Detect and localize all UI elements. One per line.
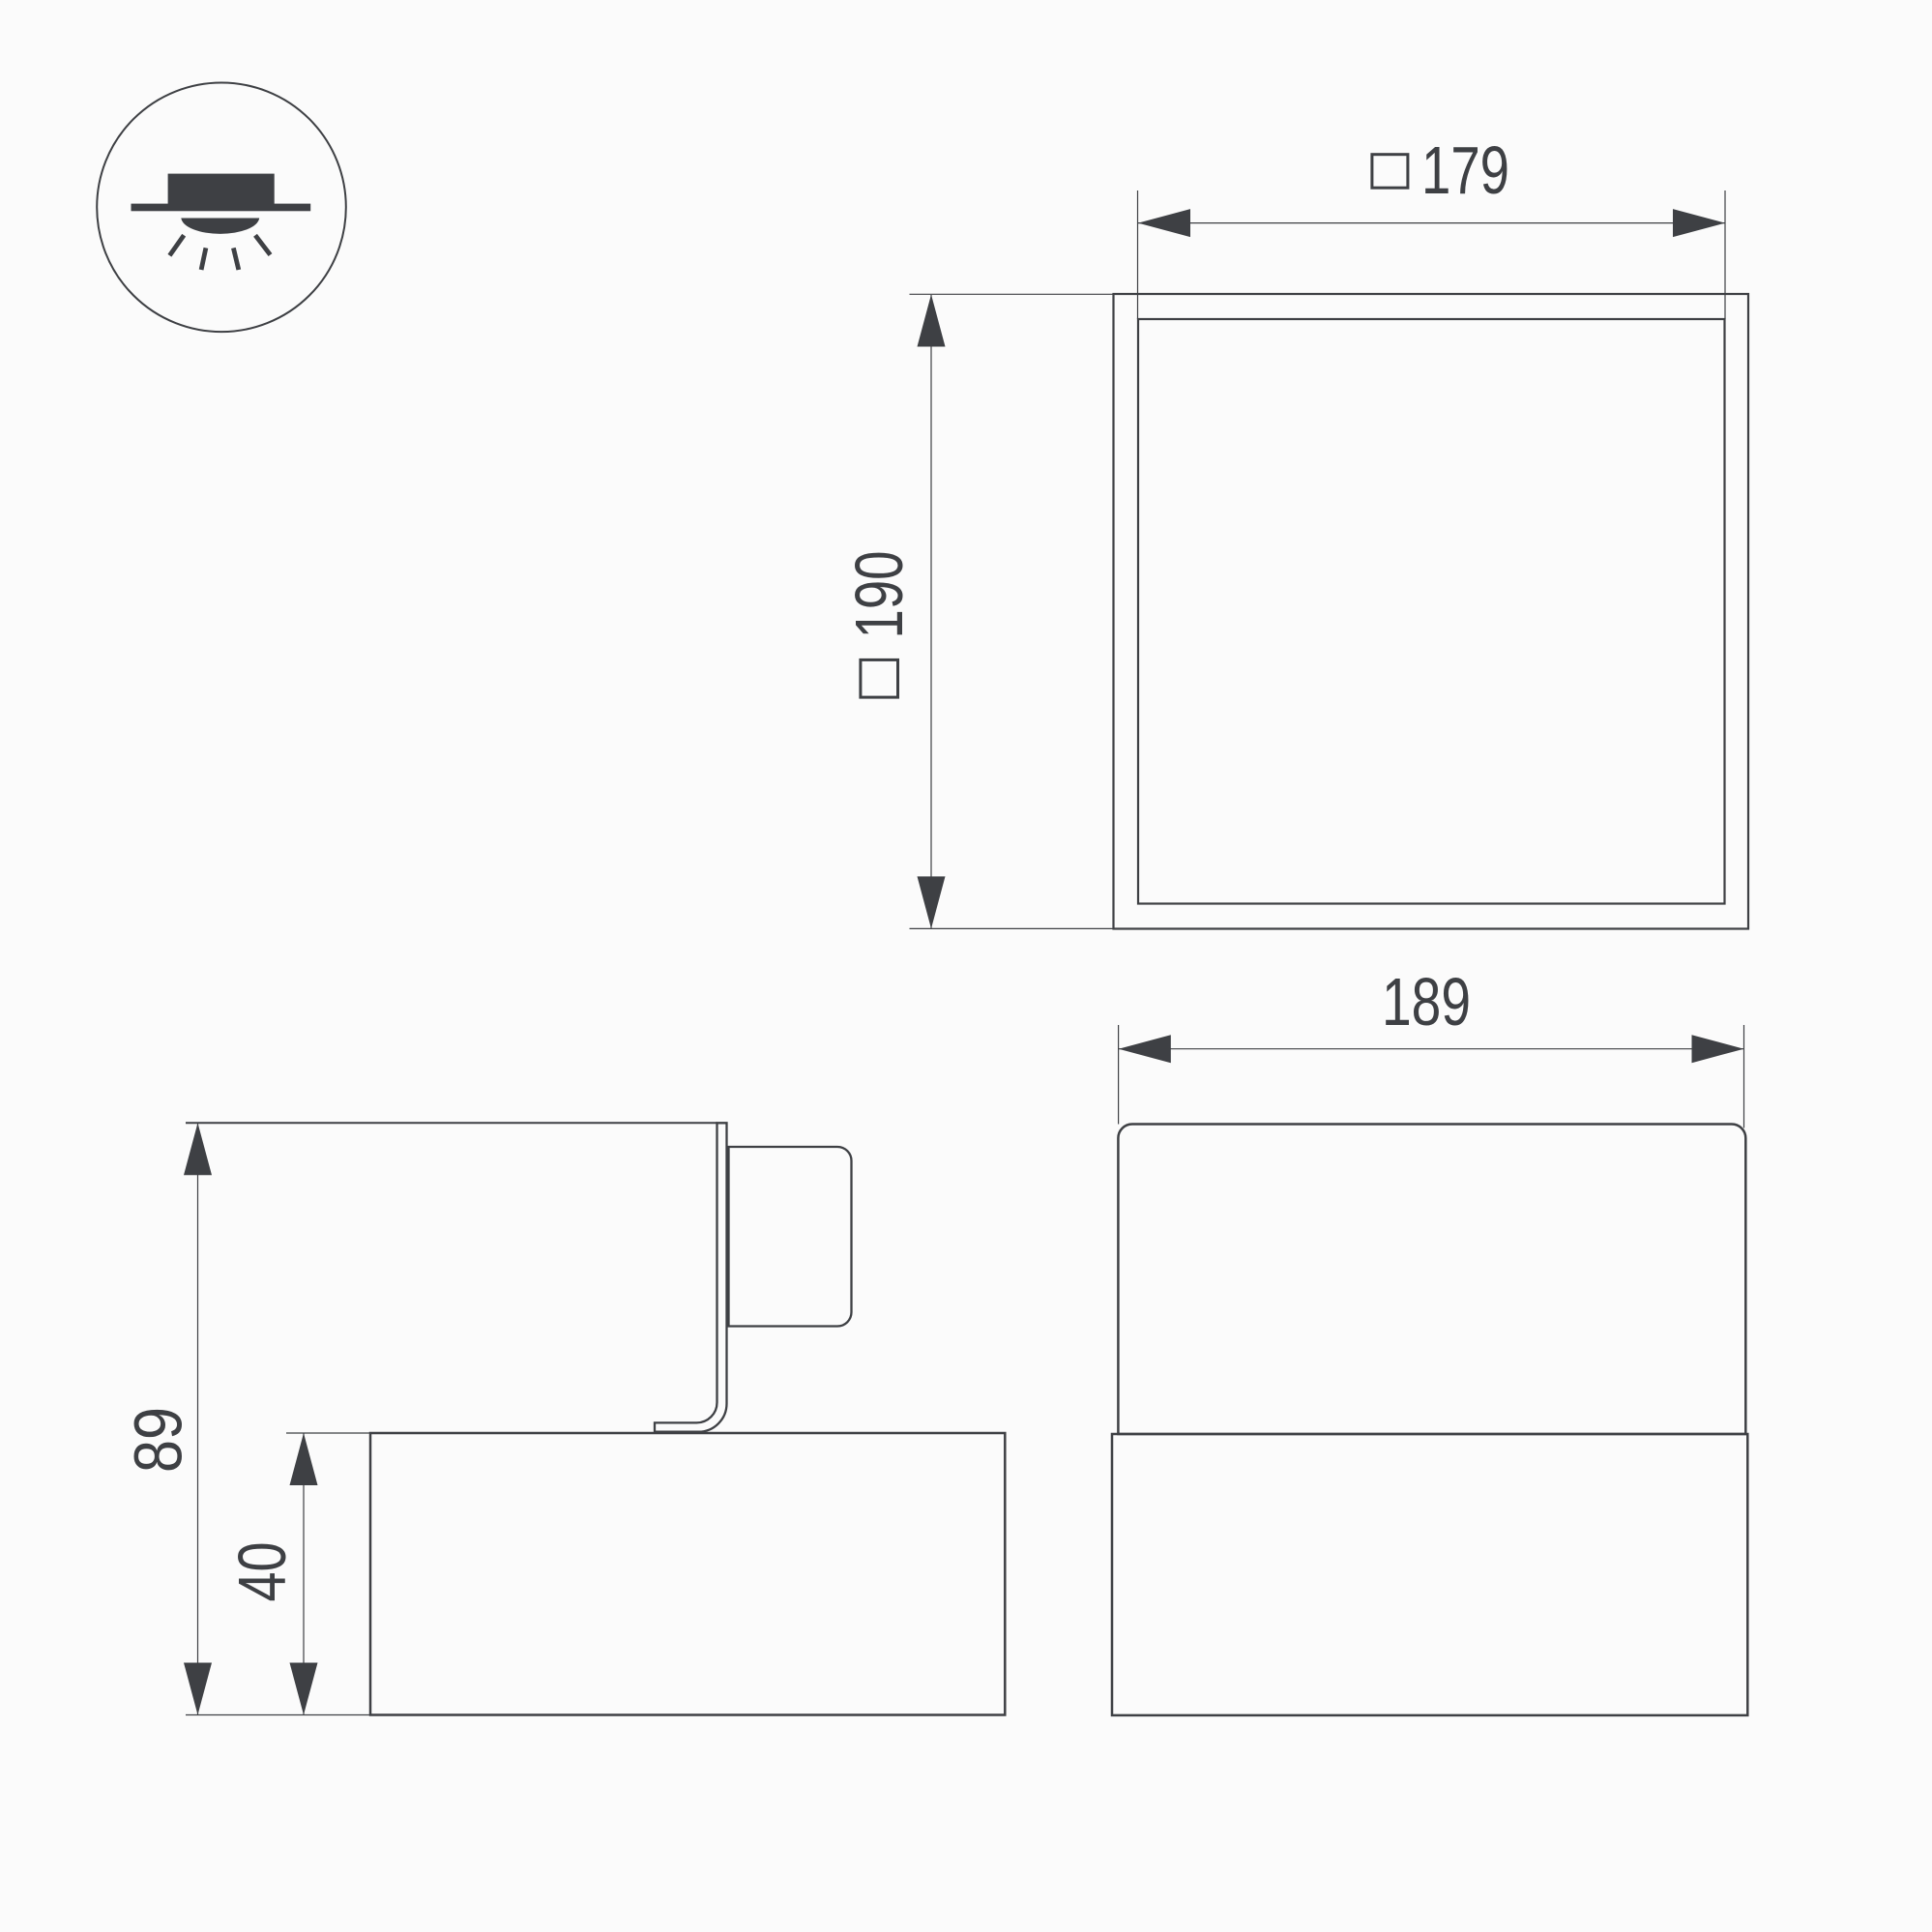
svg-text:40: 40 — [224, 1542, 300, 1602]
svg-text:89: 89 — [121, 1407, 196, 1473]
svg-text:189: 189 — [1382, 964, 1471, 1039]
svg-text:179: 179 — [1421, 132, 1509, 208]
svg-text:190: 190 — [841, 551, 917, 639]
